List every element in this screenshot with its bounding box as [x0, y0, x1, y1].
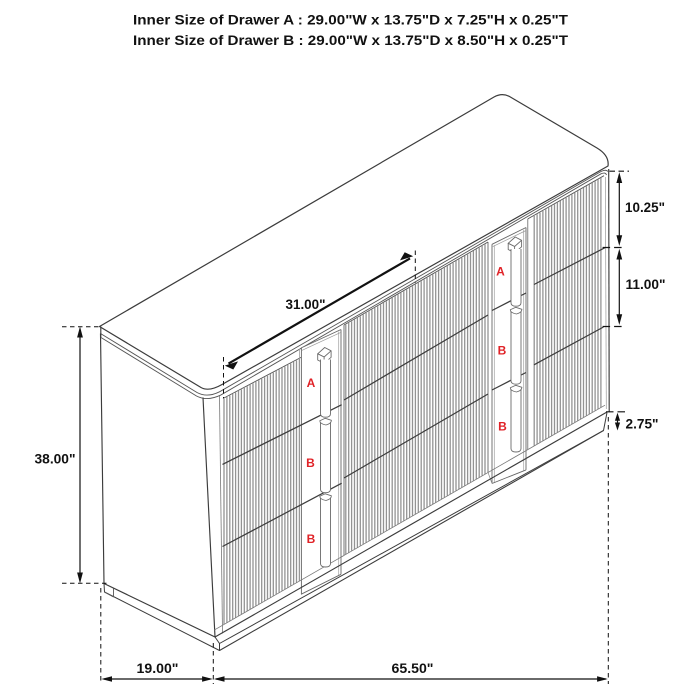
- svg-text:2.75": 2.75": [626, 416, 659, 432]
- svg-text:B: B: [306, 456, 315, 470]
- svg-text:Inner Size of Drawer A : 29.00: Inner Size of Drawer A : 29.00"W x 13.75…: [133, 13, 568, 29]
- svg-text:B: B: [498, 420, 507, 434]
- svg-text:31.00": 31.00": [286, 296, 326, 312]
- svg-text:A: A: [496, 265, 505, 279]
- svg-text:Inner Size of Drawer B : 29.00: Inner Size of Drawer B : 29.00"W x 13.75…: [133, 33, 568, 49]
- svg-text:19.00": 19.00": [137, 660, 179, 676]
- svg-text:38.00": 38.00": [35, 451, 76, 467]
- svg-text:A: A: [307, 376, 316, 390]
- svg-text:10.25": 10.25": [625, 199, 665, 215]
- svg-text:11.00": 11.00": [626, 276, 666, 292]
- svg-text:65.50": 65.50": [392, 660, 434, 676]
- svg-text:B: B: [307, 532, 316, 546]
- svg-text:B: B: [498, 344, 507, 358]
